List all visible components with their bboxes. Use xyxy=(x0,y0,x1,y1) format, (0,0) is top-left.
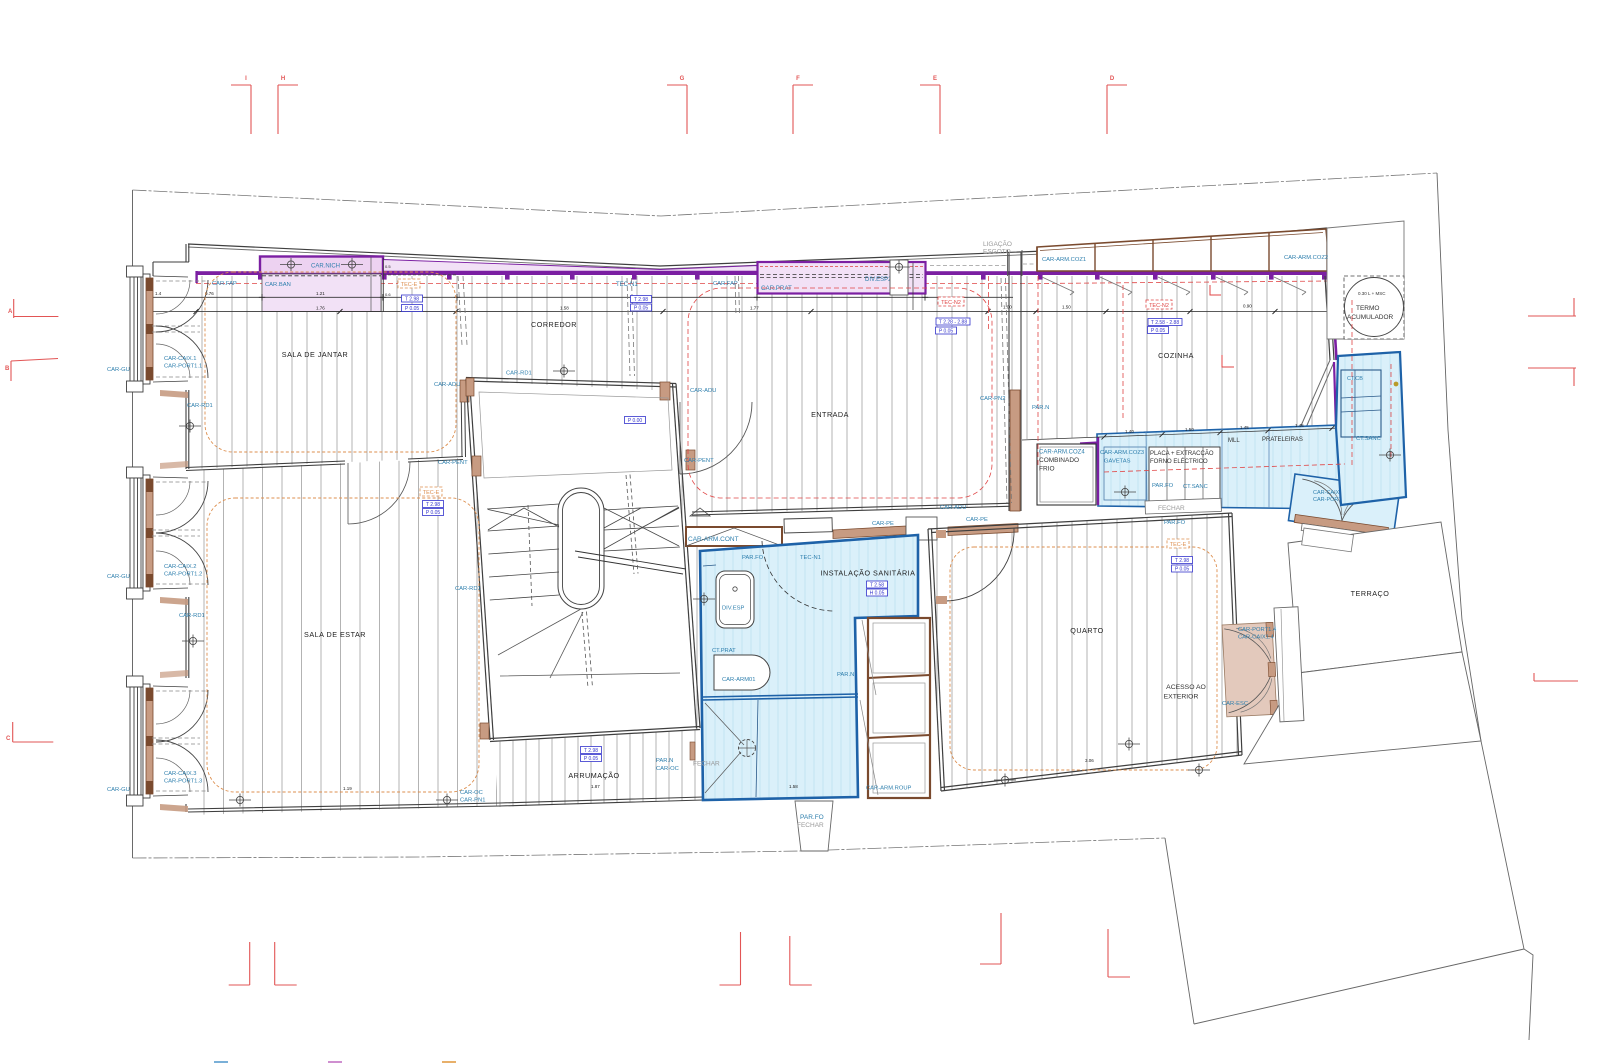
svg-text:T 2.98: T 2.98 xyxy=(584,748,598,754)
svg-text:1.76: 1.76 xyxy=(316,306,325,311)
svg-text:CAR-ADU: CAR-ADU xyxy=(690,388,716,394)
svg-text:ACESSO AO: ACESSO AO xyxy=(1166,684,1206,691)
svg-text:T 2.98: T 2.98 xyxy=(426,502,440,508)
svg-text:CAR-OC: CAR-OC xyxy=(656,766,679,772)
svg-text:ENTRADA: ENTRADA xyxy=(811,410,849,419)
svg-text:CAR.FAP: CAR.FAP xyxy=(713,281,738,287)
svg-text:FECHAR: FECHAR xyxy=(693,761,720,768)
svg-text:1.58: 1.58 xyxy=(560,306,569,311)
svg-text:1.00: 1.00 xyxy=(1003,305,1012,310)
svg-text:TEC-N1: TEC-N1 xyxy=(800,555,821,561)
svg-text:CT.PRAT: CT.PRAT xyxy=(712,648,736,654)
svg-text:P 0.05: P 0.05 xyxy=(405,306,420,312)
svg-text:CAR-CAIX1.4: CAR-CAIX1.4 xyxy=(1238,635,1275,641)
svg-text:CAR-ARM.COZ1: CAR-ARM.COZ1 xyxy=(1042,257,1086,263)
svg-text:CAR-ADU: CAR-ADU xyxy=(940,505,966,511)
svg-text:1.50: 1.50 xyxy=(1185,427,1194,432)
svg-text:CAR-ADU: CAR-ADU xyxy=(434,382,460,388)
svg-text:H: H xyxy=(281,76,285,82)
svg-text:EXTERIOR: EXTERIOR xyxy=(1164,694,1199,701)
svg-text:CAR-PORT1.3: CAR-PORT1.3 xyxy=(164,779,202,785)
svg-text:CAR-ARM.ROUP: CAR-ARM.ROUP xyxy=(866,786,912,792)
svg-text:P 0.05: P 0.05 xyxy=(426,510,441,516)
svg-text:TERMO: TERMO xyxy=(1356,305,1379,312)
svg-text:T 2.98: T 2.98 xyxy=(1175,558,1189,564)
svg-text:CT.SANC: CT.SANC xyxy=(1356,436,1381,442)
svg-text:CAR.NICH: CAR.NICH xyxy=(311,264,340,270)
svg-text:1.77: 1.77 xyxy=(750,306,759,311)
svg-text:DIV.ESP: DIV.ESP xyxy=(722,606,744,612)
svg-text:F: F xyxy=(796,76,800,82)
svg-text:3.06: 3.06 xyxy=(1085,758,1094,763)
svg-text:T 2.58: T 2.58 xyxy=(870,582,884,588)
svg-text:PAR.FO: PAR.FO xyxy=(1164,520,1186,526)
svg-text:CAR-GU: CAR-GU xyxy=(107,367,130,373)
svg-text:1.4: 1.4 xyxy=(155,291,162,296)
svg-text:CAR-PORT1.2: CAR-PORT1.2 xyxy=(164,572,202,578)
svg-text:E: E xyxy=(933,76,937,82)
svg-text:CAR.PRAT: CAR.PRAT xyxy=(761,285,792,292)
svg-text:INSTALAÇÃO SANITÁRIA: INSTALAÇÃO SANITÁRIA xyxy=(821,569,916,578)
svg-text:DIV.ESP2: DIV.ESP2 xyxy=(865,277,892,283)
svg-text:SALA DE ESTAR: SALA DE ESTAR xyxy=(304,630,366,639)
svg-text:LIGAÇÃO: LIGAÇÃO xyxy=(983,239,1012,248)
svg-text:C: C xyxy=(6,736,11,742)
svg-text:CT.SANC: CT.SANC xyxy=(1183,484,1208,490)
svg-text:0.5: 0.5 xyxy=(385,264,391,269)
svg-text:0.30 L + MSC: 0.30 L + MSC xyxy=(1358,291,1386,296)
svg-text:CAR-ESC: CAR-ESC xyxy=(1222,701,1248,707)
svg-text:CAR-CAIX.2: CAR-CAIX.2 xyxy=(164,564,197,570)
svg-text:PAR.N: PAR.N xyxy=(1032,405,1049,411)
svg-text:COZINHA: COZINHA xyxy=(1158,351,1194,360)
svg-text:SALA DE JANTAR: SALA DE JANTAR xyxy=(282,350,348,359)
svg-text:1.19: 1.19 xyxy=(343,786,352,791)
svg-text:P 0.05: P 0.05 xyxy=(1151,328,1166,334)
svg-text:1.87: 1.87 xyxy=(591,784,600,789)
svg-text:T 2.98: T 2.98 xyxy=(634,297,648,303)
svg-text:CAR-ARM.CONT: CAR-ARM.CONT xyxy=(688,536,739,543)
svg-text:CAR-GU: CAR-GU xyxy=(107,574,130,580)
svg-text:T 2.58 - 2.88: T 2.58 - 2.88 xyxy=(1151,320,1179,326)
svg-text:T 2.98: T 2.98 xyxy=(405,296,419,302)
svg-text:CAR-RD1: CAR-RD1 xyxy=(455,586,481,592)
svg-text:FECHAR: FECHAR xyxy=(797,822,824,829)
svg-text:1.50: 1.50 xyxy=(1062,305,1071,310)
svg-text:CAR-OC: CAR-OC xyxy=(460,790,483,796)
svg-text:FORNO ELÉCTRICO: FORNO ELÉCTRICO xyxy=(1150,458,1208,465)
svg-text:1.21: 1.21 xyxy=(316,291,325,296)
svg-text:0.90: 0.90 xyxy=(1243,304,1252,309)
svg-text:CAR-RD1: CAR-RD1 xyxy=(506,371,532,377)
svg-text:CAR-ARM01: CAR-ARM01 xyxy=(722,677,756,683)
svg-text:PRATELEIRAS: PRATELEIRAS xyxy=(1262,437,1303,443)
svg-text:H 0.05: H 0.05 xyxy=(870,590,885,596)
svg-text:CT.CB: CT.CB xyxy=(1347,376,1363,382)
svg-text:TEC-N1: TEC-N1 xyxy=(616,282,638,288)
svg-text:TEC-N2: TEC-N2 xyxy=(1149,303,1169,309)
svg-text:G: G xyxy=(680,76,685,82)
svg-text:TEC-N2: TEC-N2 xyxy=(941,300,961,306)
svg-text:CAR-PORT1.1: CAR-PORT1.1 xyxy=(164,364,202,370)
svg-text:D: D xyxy=(1110,76,1115,82)
svg-text:CAR-PN2: CAR-PN2 xyxy=(980,396,1005,402)
svg-text:TEC-E: TEC-E xyxy=(1170,542,1187,548)
svg-text:ARRUMAÇÃO: ARRUMAÇÃO xyxy=(568,771,619,780)
svg-text:CAR-PENT: CAR-PENT xyxy=(438,460,468,466)
svg-text:CAR-PN1: CAR-PN1 xyxy=(460,798,485,804)
svg-text:1.45: 1.45 xyxy=(1240,425,1249,430)
svg-text:P 0.00: P 0.00 xyxy=(628,418,643,424)
svg-text:CAR-ARM.COZ3: CAR-ARM.COZ3 xyxy=(1100,450,1144,456)
svg-text:CAR-ARM.COZ2: CAR-ARM.COZ2 xyxy=(1284,255,1328,261)
svg-text:MLL: MLL xyxy=(1228,438,1240,444)
svg-text:CAR-CAIX.1: CAR-CAIX.1 xyxy=(164,356,197,362)
svg-text:GAVETAS: GAVETAS xyxy=(1104,459,1131,465)
svg-text:PLACA + EXTRACÇÃO: PLACA + EXTRACÇÃO xyxy=(1150,450,1214,457)
svg-text:T 2.28 - 2.88: T 2.28 - 2.88 xyxy=(939,319,967,325)
svg-text:CAR-PE: CAR-PE xyxy=(966,517,988,523)
svg-text:TEC-E: TEC-E xyxy=(401,282,418,288)
svg-text:CAR-RD1: CAR-RD1 xyxy=(179,613,205,619)
svg-text:B: B xyxy=(5,366,10,372)
svg-text:A: A xyxy=(8,309,13,315)
svg-text:CAR-ARM.COZ4: CAR-ARM.COZ4 xyxy=(1039,450,1085,456)
svg-text:P 0.05: P 0.05 xyxy=(584,756,599,762)
svg-text:P 0.05: P 0.05 xyxy=(939,328,954,334)
svg-text:PAR.N: PAR.N xyxy=(656,758,673,764)
svg-text:CAR-PE: CAR-PE xyxy=(872,521,894,527)
svg-text:P 0.05: P 0.05 xyxy=(634,305,649,311)
svg-text:PAR.FO: PAR.FO xyxy=(800,814,824,821)
svg-text:COMBINADO: COMBINADO xyxy=(1039,457,1079,464)
svg-text:CAR-PORT1.4: CAR-PORT1.4 xyxy=(1238,627,1277,633)
svg-text:1.58: 1.58 xyxy=(789,784,798,789)
svg-text:QUARTO: QUARTO xyxy=(1070,626,1104,635)
svg-text:FECHAR: FECHAR xyxy=(1158,505,1185,512)
svg-text:ACUMULADOR: ACUMULADOR xyxy=(1347,314,1394,321)
svg-text:FRIO: FRIO xyxy=(1039,466,1055,473)
svg-text:PAR.N: PAR.N xyxy=(837,672,854,678)
svg-text:CAR.BAN: CAR.BAN xyxy=(265,282,291,288)
svg-text:1.45: 1.45 xyxy=(1295,423,1304,428)
svg-text:CAR.FAP: CAR.FAP xyxy=(212,281,237,287)
svg-text:PAR.FO: PAR.FO xyxy=(1152,483,1174,489)
svg-text:TEC-E: TEC-E xyxy=(423,490,440,496)
svg-text:ESGOTO: ESGOTO xyxy=(983,249,1011,256)
svg-text:CAR-CAIX.3: CAR-CAIX.3 xyxy=(164,771,197,777)
svg-text:CORREDOR: CORREDOR xyxy=(531,320,577,329)
svg-text:PAR.FO: PAR.FO xyxy=(742,555,764,561)
svg-text:CAR-RD1: CAR-RD1 xyxy=(187,403,213,409)
svg-text:0.6: 0.6 xyxy=(385,292,391,297)
svg-text:CAR-GU: CAR-GU xyxy=(107,787,130,793)
svg-text:CAR-PENT: CAR-PENT xyxy=(684,458,714,464)
svg-text:P 0.05: P 0.05 xyxy=(1175,566,1190,572)
svg-text:TERRAÇO: TERRAÇO xyxy=(1351,589,1390,598)
svg-text:1.40: 1.40 xyxy=(1125,429,1134,434)
